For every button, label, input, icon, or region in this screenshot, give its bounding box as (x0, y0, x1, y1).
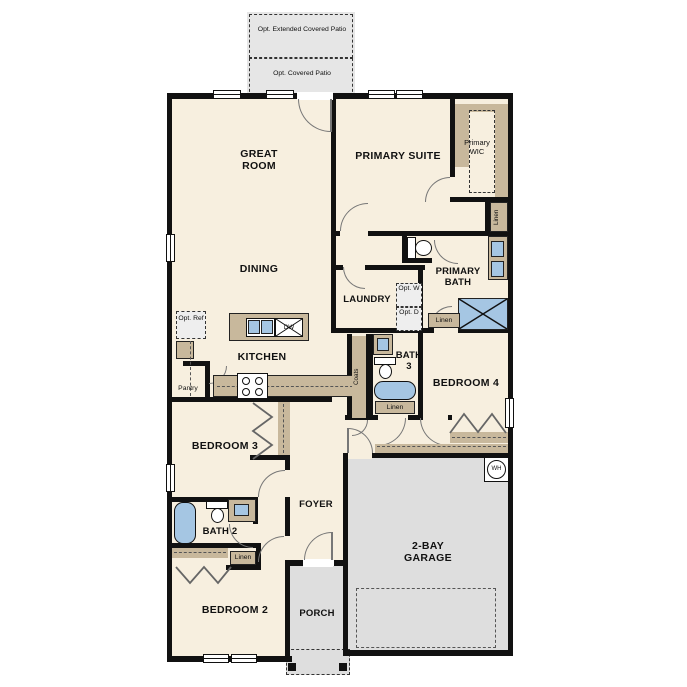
bath2-sink (234, 504, 249, 516)
window-greatroom-1 (213, 90, 241, 99)
porch-post-left (288, 663, 296, 671)
coats-label: Coats (353, 360, 365, 394)
floor-plan: Opt. Extended Covered Patio Opt. Covered… (0, 0, 687, 687)
bath2-label: BATH 2 (198, 527, 242, 538)
garage-door-gap (348, 452, 372, 459)
window-bedroom4 (505, 398, 514, 428)
window-greatroom-2 (266, 90, 294, 99)
wall-laundry-top-a (331, 265, 343, 270)
bedroom3-label: BEDROOM 3 (186, 440, 264, 452)
window-bedroom2-2 (231, 654, 257, 663)
opt-covered-patio-label: Opt. Covered Patio (256, 70, 348, 78)
dishwasher-label: DW (275, 324, 303, 331)
bed2-closet-dashline (174, 552, 226, 553)
wic-shelf-right (495, 104, 508, 197)
bath2-toilet-bowl (211, 508, 224, 523)
foyer-label: FOYER (293, 500, 339, 511)
garage-parking-outline (356, 588, 496, 648)
linen-hall-label: Linen (375, 404, 415, 412)
porch-step-outline (286, 649, 350, 675)
wall-front-right (334, 560, 348, 566)
stove (237, 373, 268, 399)
primary-suite-label: PRIMARY SUITE (352, 150, 444, 162)
wall-hall2-c (448, 415, 452, 420)
garage-entry-door-leaf (347, 428, 349, 453)
wall-bottom-bed2 (167, 656, 292, 662)
wall-hall2-b (408, 415, 418, 420)
bath3-label: BATH 3 (394, 351, 424, 373)
kitchen-label: KITCHEN (230, 351, 294, 363)
primary-toilet-bowl (415, 240, 432, 256)
water-heater-label: WH (487, 466, 506, 473)
wall-right (508, 93, 513, 656)
window-dining (166, 234, 175, 262)
wall-suite-south-a (331, 231, 340, 236)
dining-label: DINING (227, 263, 291, 275)
wall-bath3-bed4 (418, 333, 423, 420)
bed4-closet-dashline (452, 437, 506, 438)
window-bedroom3 (166, 464, 175, 492)
stove-burner (242, 388, 250, 396)
wic-shelf-left (455, 104, 469, 167)
bath2-tub (174, 502, 196, 544)
bed3-closet-dashline (283, 404, 284, 453)
primary-wic-label: Primary WIC (458, 139, 496, 156)
garage-curb-dashline (377, 446, 506, 447)
linen-wic-label: Linen (493, 204, 505, 230)
primary-sink-2 (491, 261, 504, 277)
opt-d-label: Opt. D (397, 309, 421, 317)
wall-bed2-top-stub (226, 565, 261, 570)
primary-sink-1 (491, 241, 504, 257)
front-door-leaf (331, 532, 333, 560)
bath3-toilet-bowl (379, 364, 392, 379)
great-room-label: GREAT ROOM (227, 148, 291, 172)
patio-door-leaf (330, 99, 332, 132)
linen-bath-label: Linen (428, 317, 460, 325)
kitchen-cabinet (176, 341, 194, 359)
wall-laundry-top-b (365, 265, 425, 270)
stove-burner (242, 377, 250, 385)
porch-post-right (339, 663, 347, 671)
island-sink-basin-1 (248, 320, 260, 334)
opt-extended-patio-outline (249, 14, 353, 58)
bedroom4-label: BEDROOM 4 (429, 377, 503, 389)
wall-bed2-right (285, 560, 290, 656)
laundry-label: LAUNDRY (336, 295, 398, 306)
opt-extended-patio-label: Opt. Extended Covered Patio (256, 26, 348, 34)
wall-garage-bottom (343, 650, 513, 656)
wall-bed3-closet-bottom (250, 455, 290, 460)
opt-ref-label: Opt. Ref (177, 315, 205, 323)
window-suite-2 (396, 90, 423, 99)
front-door-gap (303, 559, 333, 567)
wall-left (167, 93, 172, 662)
porch-label: PORCH (294, 609, 340, 620)
stove-burner (255, 377, 263, 385)
stove-burner (255, 388, 263, 396)
wall-coats-right (366, 334, 373, 420)
opt-w-label: Opt. W (397, 285, 421, 293)
primary-bath-label: PRIMARY BATH (427, 267, 489, 289)
primary-shower (458, 298, 508, 330)
pantry-label: Pantry (168, 385, 208, 393)
linen-bed2-label: Linen (230, 554, 256, 562)
bed3-closet-shelf (278, 402, 290, 455)
bed2-closet-shelf (172, 548, 228, 558)
bedroom2-label: BEDROOM 2 (194, 604, 276, 616)
bath3-sink (377, 338, 389, 351)
window-bedroom2-1 (203, 654, 229, 663)
wall-garage-left (343, 453, 348, 656)
island-sink-basin-2 (261, 320, 273, 334)
window-suite-1 (368, 90, 395, 99)
wall-foyer-left-b (285, 497, 290, 536)
garage-label: 2-BAY GARAGE (390, 540, 466, 564)
bath3-tub (374, 381, 416, 400)
